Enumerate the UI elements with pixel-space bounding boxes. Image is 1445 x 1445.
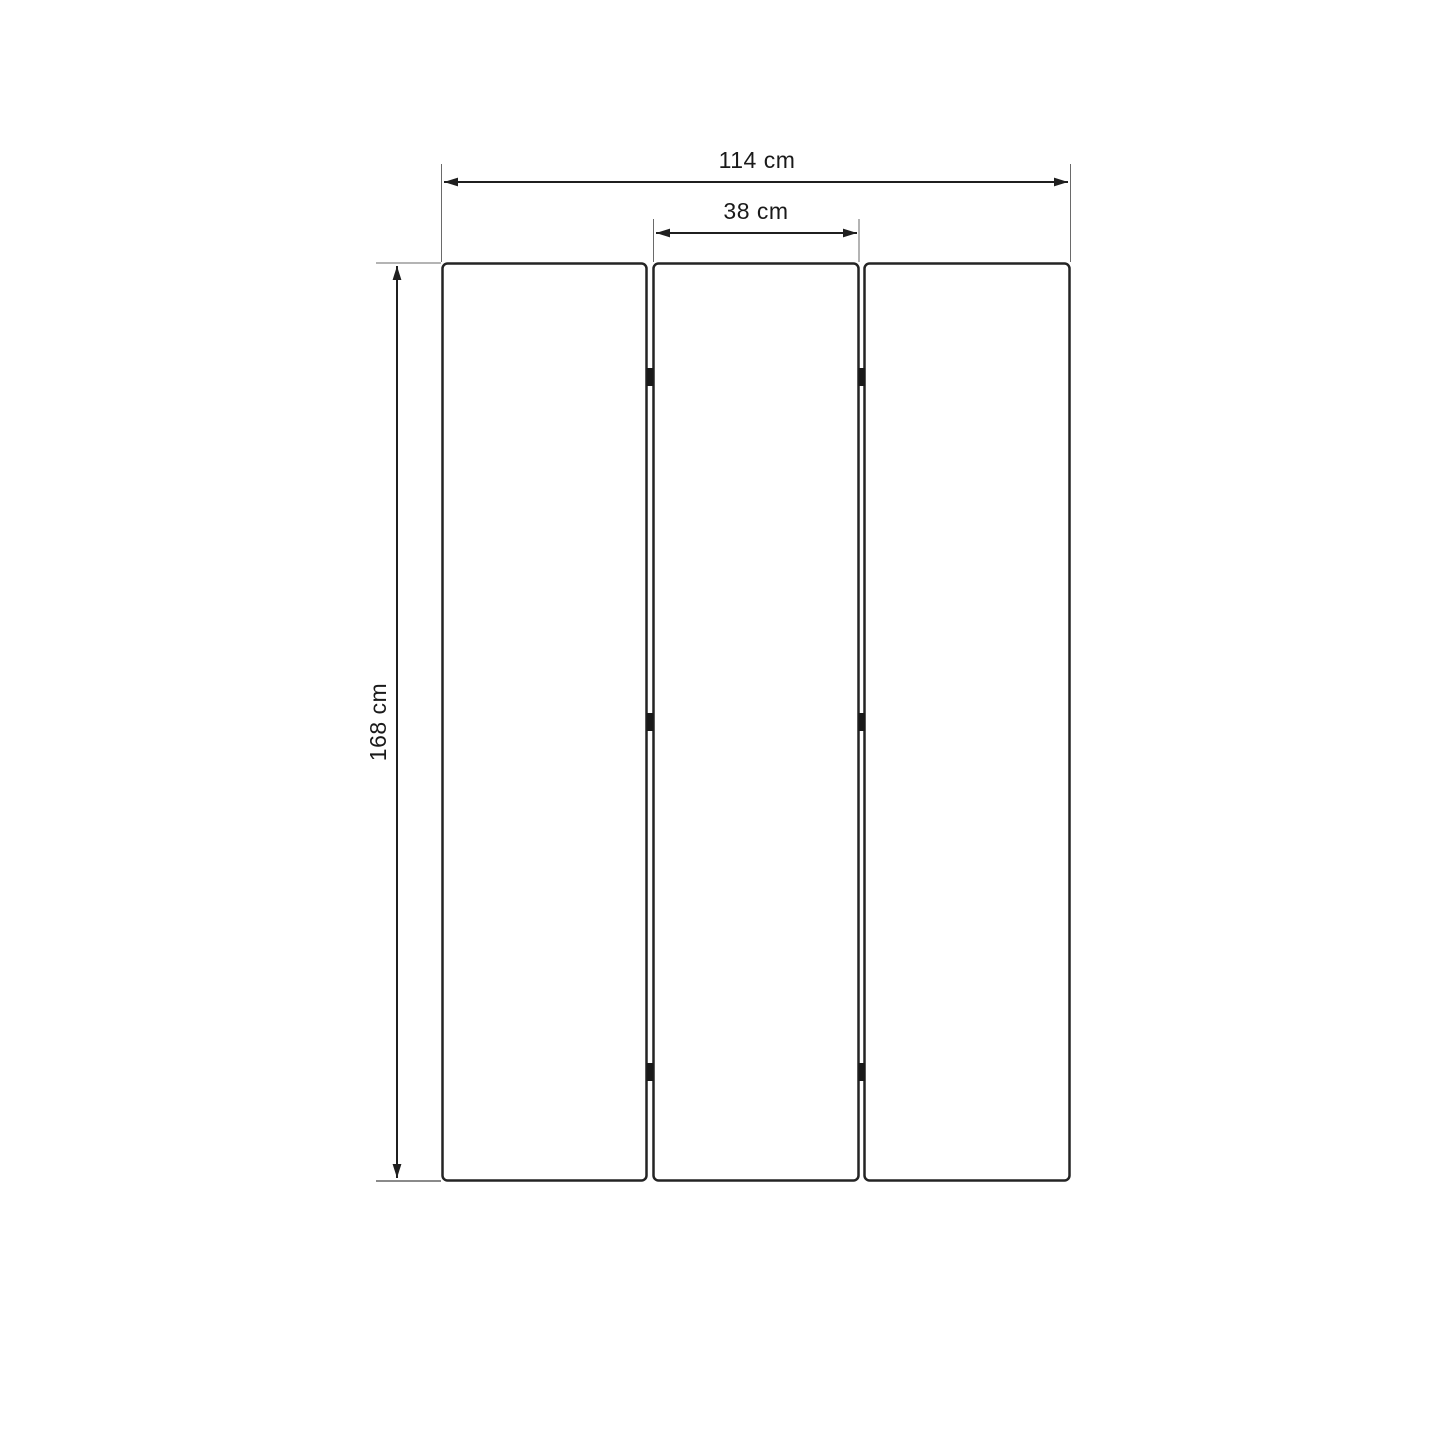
- dimension-total-width: 114 cm: [444, 147, 1068, 182]
- dimension-label-total-width: 114 cm: [719, 147, 796, 173]
- hinge-mark-left-top: [647, 368, 654, 386]
- panel-dimension-diagram: 114 cm 38 cm 168 cm: [0, 0, 1445, 1445]
- panel-middle: [654, 264, 859, 1181]
- screen-panels: [443, 264, 1070, 1181]
- dimension-label-height: 168 cm: [365, 683, 391, 761]
- dimension-label-panel-width: 38 cm: [723, 198, 788, 224]
- hinge-mark-left-bottom: [647, 1063, 654, 1081]
- diagram-canvas: 114 cm 38 cm 168 cm: [0, 0, 1445, 1445]
- hinge-mark-right-top: [859, 368, 866, 386]
- hinge-mark-right-middle: [859, 713, 866, 731]
- dimension-panel-width: 38 cm: [656, 198, 857, 233]
- dimension-height: 168 cm: [365, 266, 397, 1178]
- hinge-mark-right-bottom: [859, 1063, 866, 1081]
- panel-left: [443, 264, 647, 1181]
- hinge-mark-left-middle: [647, 713, 654, 731]
- panel-right: [865, 264, 1070, 1181]
